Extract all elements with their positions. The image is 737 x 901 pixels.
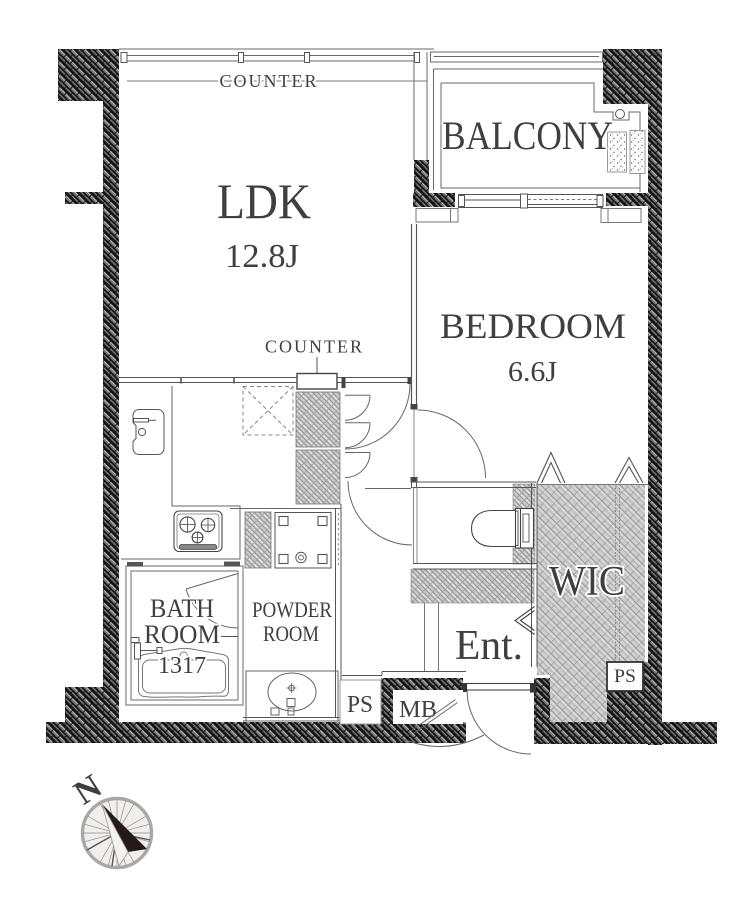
- svg-text:COUNTER: COUNTER: [265, 337, 364, 357]
- svg-text:Ent.: Ent.: [455, 623, 523, 669]
- svg-text:PS: PS: [347, 692, 373, 718]
- svg-text:ROOM: ROOM: [144, 620, 220, 649]
- svg-text:1317: 1317: [158, 653, 206, 679]
- svg-text:ROOM: ROOM: [263, 621, 319, 646]
- svg-text:LDK: LDK: [217, 173, 311, 229]
- svg-text:12.8J: 12.8J: [225, 238, 299, 275]
- svg-text:BEDROOM: BEDROOM: [440, 306, 626, 346]
- svg-text:POWDER: POWDER: [252, 597, 332, 622]
- svg-text:WIC: WIC: [549, 559, 625, 605]
- svg-text:BATH: BATH: [150, 594, 214, 623]
- svg-text:BALCONY: BALCONY: [442, 113, 613, 158]
- svg-text:COUNTER: COUNTER: [220, 71, 319, 91]
- svg-text:PS: PS: [614, 666, 636, 687]
- svg-text:6.6J: 6.6J: [508, 357, 557, 388]
- svg-text:MB: MB: [399, 697, 437, 723]
